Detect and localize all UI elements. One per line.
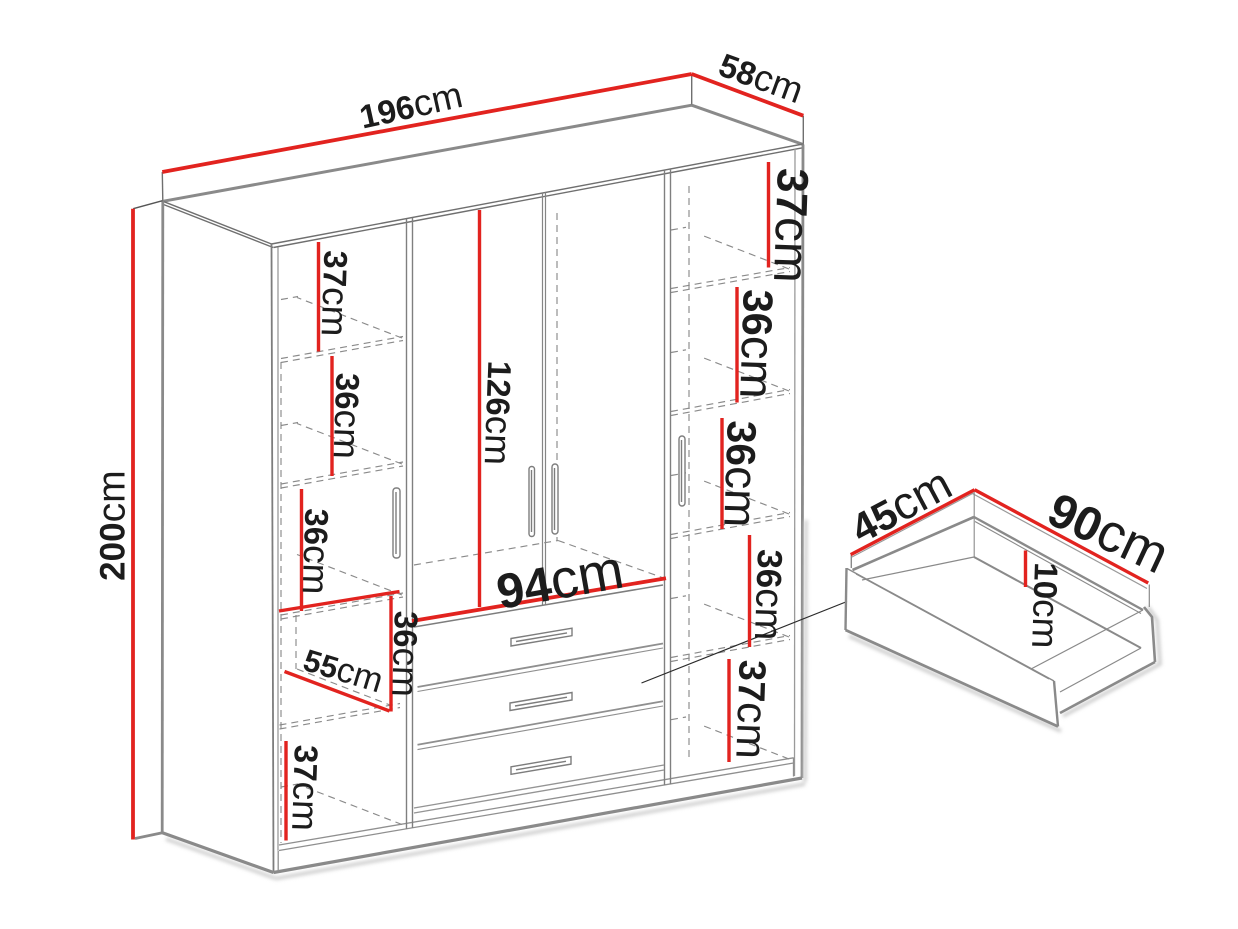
svg-text:36cm: 36cm <box>714 420 770 529</box>
svg-text:37cm: 37cm <box>314 250 358 337</box>
svg-text:10cm: 10cm <box>1024 562 1068 649</box>
svg-text:37cm: 37cm <box>763 167 822 283</box>
svg-text:36cm: 36cm <box>326 372 370 459</box>
svg-text:37cm: 37cm <box>284 744 328 831</box>
svg-text:37cm: 37cm <box>726 659 777 760</box>
svg-text:126cm: 126cm <box>477 360 522 466</box>
svg-text:200cm: 200cm <box>91 470 134 581</box>
svg-text:36cm: 36cm <box>746 549 792 642</box>
svg-text:36cm: 36cm <box>384 610 428 697</box>
svg-text:36cm: 36cm <box>730 288 787 399</box>
svg-text:36cm: 36cm <box>295 508 339 595</box>
